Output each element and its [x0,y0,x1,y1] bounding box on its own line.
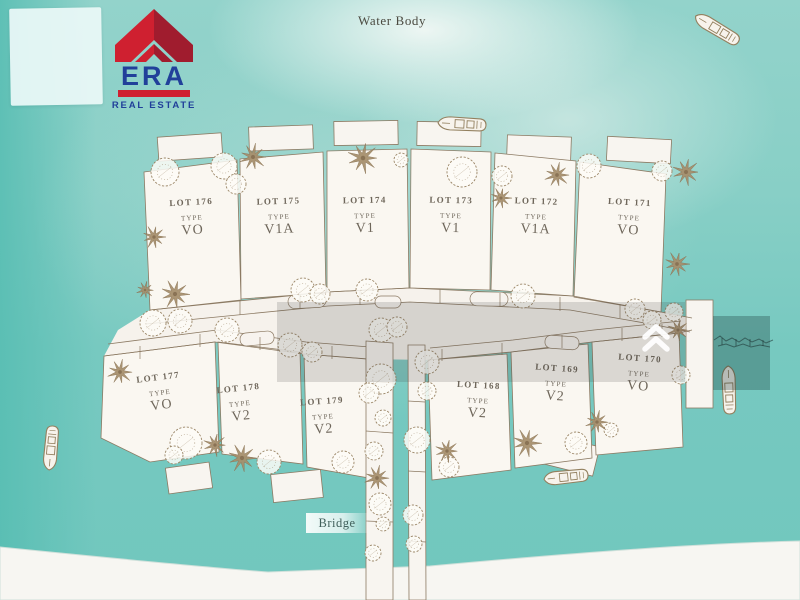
lot-type-value: VO [606,222,650,240]
tree-icon [332,451,354,473]
bridge-label: Bridge [306,513,368,533]
lot-type-value: V1A [257,221,301,239]
lot-label-171: LOT 171 TYPE VO [606,196,652,240]
tree-icon [140,310,166,336]
watermark-chevron-logo-icon [641,323,671,357]
tree-icon [418,382,436,400]
tree-icon [652,161,672,181]
boat-icon [543,468,588,486]
tree-icon [577,154,601,178]
tree-icon [257,450,281,474]
tree-icon [492,166,512,186]
shoreline-sketch-icon [712,330,776,354]
lot-type-value: V2 [455,405,499,423]
tree-icon [604,423,618,437]
boat-icon [438,116,487,131]
lot-label-173: LOT 173 TYPE V1 [429,195,473,238]
era-real-estate-logo: ERA REAL ESTATE [108,4,200,112]
tree-icon [165,446,183,464]
lot-type-value: V1 [343,221,387,238]
lot-type-word: TYPE [343,212,387,221]
tree-icon [226,174,246,194]
lot-label-178: LOT 178 TYPE V2 [216,381,264,427]
tree-icon [403,505,423,525]
lot-type-value: VO [170,222,214,240]
lot-label-177: LOT 177 TYPE VO [136,369,184,416]
lot-number: LOT 175 [256,195,300,207]
palm-tree-icon [673,159,698,186]
tree-icon [404,427,430,453]
lot-type-word: TYPE [257,212,301,222]
era-roof-icon [115,9,193,62]
lot-label-174: LOT 174 TYPE V1 [343,195,387,238]
lot-type-value: V1 [429,221,473,238]
lot-label-168: LOT 168 TYPE V2 [455,379,501,423]
palm-tree-icon [666,253,690,276]
lot-number: LOT 176 [169,196,213,208]
tree-icon [565,432,587,454]
watermark-overlay [277,302,685,382]
boat-icon [692,11,741,48]
tree-icon [447,157,477,187]
lot-number: LOT 171 [608,196,652,208]
tree-icon [406,536,422,552]
tree-icon [375,410,391,426]
blank-logo-card [9,7,103,106]
tree-icon [215,318,239,342]
lot-type-value: V2 [302,420,347,439]
lot-number: LOT 179 [300,395,344,408]
lot-label-176: LOT 176 TYPE VO [169,196,215,240]
era-subtitle: REAL ESTATE [112,100,196,111]
tree-icon [365,442,383,460]
lot-label-175: LOT 175 TYPE V1A [256,195,301,238]
tree-icon [168,309,192,333]
era-wordmark: ERA [121,61,187,91]
bottom-shore [0,541,800,600]
lot-type-word: TYPE [429,212,473,221]
lot-label-172: LOT 172 TYPE V1A [513,195,558,238]
boat-icon [43,425,60,470]
lot-type-word: TYPE [514,212,558,222]
tree-icon [356,279,378,301]
tree-icon [376,517,390,531]
tree-icon [151,158,179,186]
lot-number: LOT 173 [429,195,473,206]
tree-icon [394,153,408,167]
water-body-label: Water Body [358,13,426,29]
tree-icon [365,545,381,561]
lot-type-value: V1A [513,221,557,239]
lot-number: LOT 172 [515,195,559,207]
tree-icon [369,493,391,515]
tree-icon [310,284,330,304]
lot-type-value: V2 [533,387,578,406]
tree-icon [359,383,379,403]
era-red-bar [118,90,190,97]
site-plan-canvas: LOT 176 TYPE VO LOT 175 TYPE V1A LOT 174… [0,0,800,600]
lot-number: LOT 174 [343,195,387,206]
lot-label-179: LOT 179 TYPE V2 [300,395,347,440]
